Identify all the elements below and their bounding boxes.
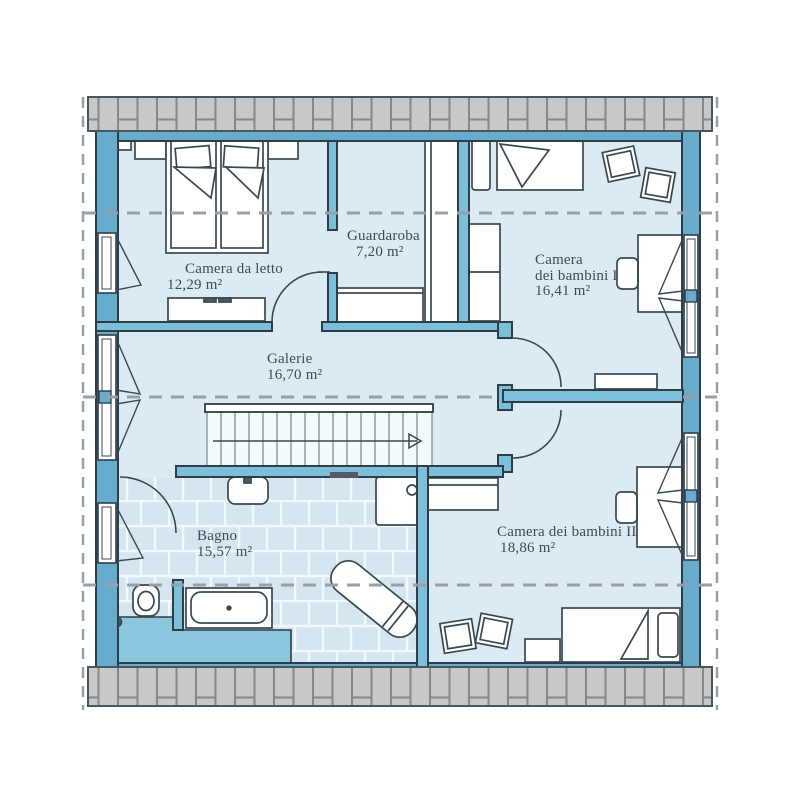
window-mullion <box>685 290 697 302</box>
window <box>98 503 116 563</box>
wardrobe-closet <box>425 141 458 322</box>
desk-chair <box>616 492 637 523</box>
bathtub <box>186 588 272 628</box>
room-name: dei bambini I <box>535 269 618 285</box>
room-name: Galerie <box>267 352 322 368</box>
room-area: 7,20 m² <box>356 245 420 261</box>
floor-plan: Camera da letto 12,29 m² Guardaroba 7,20… <box>0 0 800 800</box>
wall-bagno-bambini2 <box>417 466 428 672</box>
single-bed <box>562 608 680 662</box>
room-label-bagno: Bagno 15,57 m² <box>197 529 252 560</box>
room-label-guardaroba: Guardaroba 7,20 m² <box>347 229 420 260</box>
room-label-camera-dei-bambini-1: Camera dei bambini I 16,41 m² <box>535 253 618 300</box>
double-bed <box>166 136 268 253</box>
floor-plan-drawing <box>0 0 800 800</box>
wall-stub <box>498 322 512 338</box>
wall-bambini1-bambini2 <box>503 390 683 402</box>
room-name: Guardaroba <box>347 229 420 245</box>
room-area: 12,29 m² <box>167 278 283 294</box>
floor-cushion <box>440 619 476 654</box>
desk-chair <box>617 258 638 289</box>
desk <box>637 467 682 547</box>
window-mullion <box>685 490 697 502</box>
floor-cushion <box>602 146 640 182</box>
side-table <box>525 639 560 662</box>
window <box>98 233 116 293</box>
stair-railing <box>205 404 433 412</box>
shelf <box>428 478 498 510</box>
room-label-camera-dei-bambini-2: Camera dei bambini II 18,86 m² <box>497 525 637 556</box>
single-bed <box>472 137 583 190</box>
wall-galerie-north <box>322 322 498 331</box>
roof-hatch-top <box>88 97 712 131</box>
room-label-galerie: Galerie 16,70 m² <box>267 352 322 383</box>
room-name: Bagno <box>197 529 252 545</box>
room-name: Camera <box>535 253 618 269</box>
room-area: 16,70 m² <box>267 368 322 384</box>
sideboard <box>595 374 657 389</box>
floor-cushion <box>475 613 512 649</box>
room-area: 18,86 m² <box>500 541 637 557</box>
room-area: 15,57 m² <box>197 545 252 561</box>
toilet <box>133 585 159 616</box>
floor-cushion <box>641 168 676 203</box>
room-label-camera-da-letto: Camera da letto 12,29 m² <box>167 262 283 293</box>
wardrobe <box>469 224 500 321</box>
exterior-wall-top <box>96 131 700 141</box>
room-name: Camera dei bambini II <box>497 525 637 541</box>
sink <box>228 477 268 504</box>
shelf <box>335 288 423 322</box>
dresser <box>168 298 265 321</box>
room-name: Camera da letto <box>185 262 283 278</box>
wall-bedroom-guardaroba <box>328 141 337 230</box>
door-threshold <box>330 472 358 478</box>
wall-guardaroba-bambini1 <box>458 141 469 331</box>
staircase <box>205 404 433 466</box>
room-area: 16,41 m² <box>535 284 618 300</box>
wall-bagno-partition <box>173 580 183 630</box>
wall-galerie-north <box>96 322 272 331</box>
roof-hatch-bottom <box>88 667 712 706</box>
